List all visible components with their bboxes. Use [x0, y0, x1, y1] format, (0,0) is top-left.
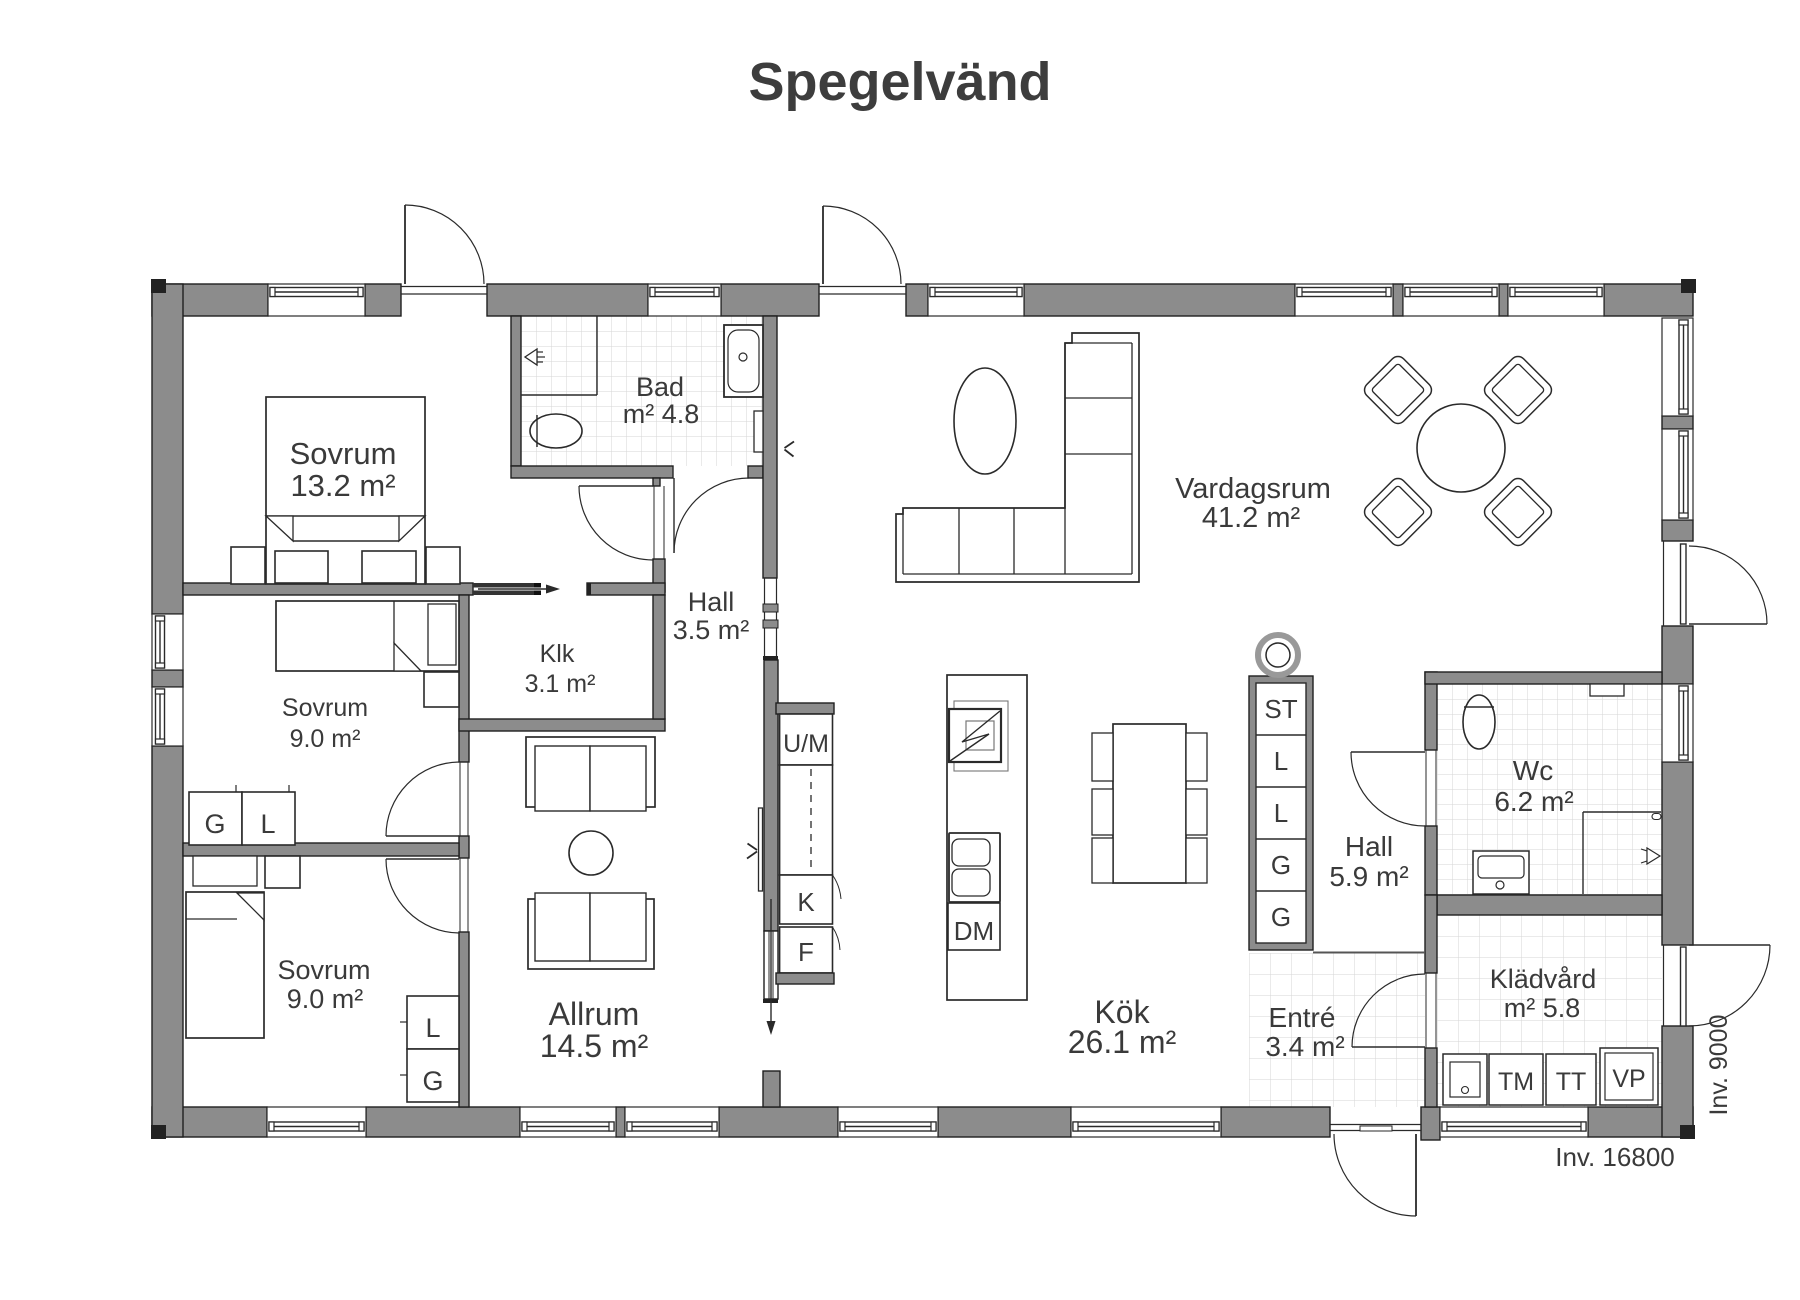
- svg-text:TM: TM: [1498, 1068, 1534, 1096]
- svg-text:Allrum: Allrum: [549, 996, 640, 1032]
- svg-text:U/M: U/M: [783, 730, 829, 758]
- svg-text:G: G: [1271, 902, 1291, 932]
- svg-text:Spegelvänd: Spegelvänd: [748, 52, 1051, 112]
- svg-text:5.9 m²: 5.9 m²: [1329, 861, 1408, 892]
- svg-text:G: G: [422, 1066, 443, 1096]
- svg-text:TT: TT: [1556, 1068, 1587, 1096]
- svg-text:G: G: [1271, 850, 1291, 880]
- svg-text:DM: DM: [954, 916, 994, 946]
- svg-text:G: G: [204, 809, 225, 839]
- svg-text:41.2 m²: 41.2 m²: [1202, 502, 1301, 534]
- svg-text:Sovrum: Sovrum: [282, 694, 368, 722]
- svg-text:Vardagsrum: Vardagsrum: [1175, 473, 1331, 505]
- svg-text:9.0 m²: 9.0 m²: [287, 984, 364, 1014]
- svg-text:3.5 m²: 3.5 m²: [673, 615, 750, 645]
- svg-text:Klk: Klk: [540, 640, 575, 668]
- svg-text:3.4 m²: 3.4 m²: [1265, 1031, 1344, 1062]
- svg-text:Sovrum: Sovrum: [290, 436, 397, 471]
- svg-text:m² 4.8: m² 4.8: [623, 399, 700, 429]
- svg-text:Wc: Wc: [1513, 755, 1553, 786]
- svg-text:ST: ST: [1264, 694, 1297, 724]
- svg-text:13.2 m²: 13.2 m²: [290, 468, 395, 503]
- svg-text:9.0 m²: 9.0 m²: [290, 725, 361, 753]
- svg-text:Hall: Hall: [1345, 831, 1393, 862]
- svg-text:Klädvård: Klädvård: [1490, 964, 1597, 994]
- svg-text:Sovrum: Sovrum: [277, 955, 370, 985]
- svg-text:F: F: [798, 937, 814, 967]
- svg-text:L: L: [1274, 746, 1288, 776]
- svg-text:m² 5.8: m² 5.8: [1504, 993, 1581, 1023]
- svg-text:Inv. 16800: Inv. 16800: [1555, 1142, 1675, 1172]
- svg-text:Bad: Bad: [636, 372, 684, 402]
- svg-text:Hall: Hall: [688, 587, 735, 617]
- svg-text:VP: VP: [1612, 1065, 1645, 1093]
- svg-text:Inv. 9000: Inv. 9000: [1705, 1014, 1733, 1115]
- svg-text:3.1 m²: 3.1 m²: [525, 670, 596, 698]
- svg-text:6.2 m²: 6.2 m²: [1494, 786, 1573, 817]
- svg-text:L: L: [1274, 798, 1288, 828]
- svg-text:14.5 m²: 14.5 m²: [540, 1028, 649, 1064]
- svg-text:L: L: [425, 1013, 440, 1043]
- svg-text:K: K: [797, 887, 815, 917]
- svg-text:Entré: Entré: [1269, 1002, 1336, 1033]
- svg-text:26.1 m²: 26.1 m²: [1068, 1024, 1177, 1060]
- svg-text:L: L: [260, 809, 275, 839]
